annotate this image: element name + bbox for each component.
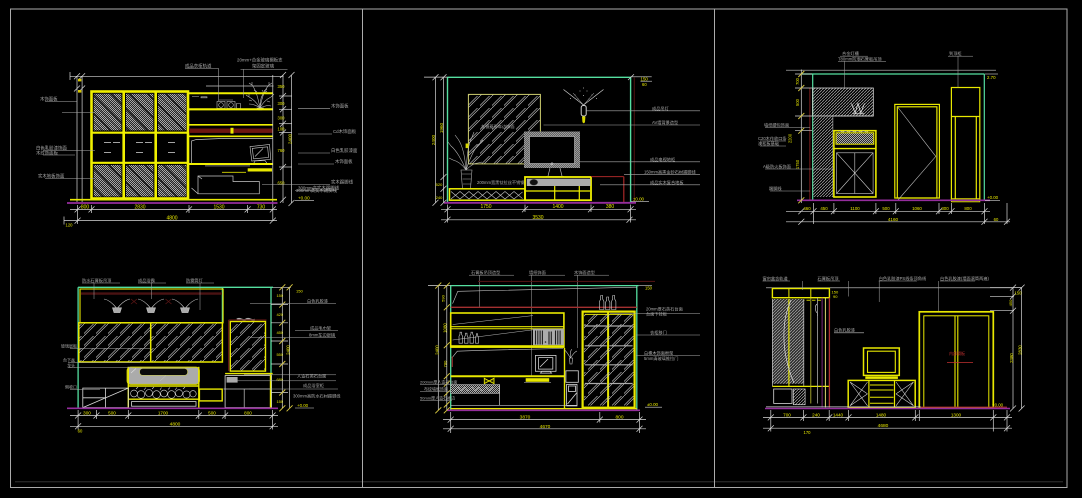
svg-text:A级防火板饰面: A级防火板饰面 [763,163,791,170]
svg-text:白色乳胶漆面: 白色乳胶漆面 [331,147,358,154]
svg-text:1080: 1080 [443,323,448,333]
svg-text:780: 780 [443,360,448,367]
svg-text:300: 300 [278,116,286,121]
svg-text:420: 420 [276,312,283,317]
svg-text:侧收口: 侧收口 [65,384,77,390]
svg-text:300: 300 [941,206,949,211]
svg-text:成品毛巾架: 成品毛巾架 [310,325,331,332]
svg-text:350: 350 [278,84,286,89]
svg-text:木纹饰面板: 木纹饰面板 [36,149,59,156]
svg-text:台面下挂板: 台面下挂板 [646,311,668,318]
svg-text:墙纸饰面: 墙纸饰面 [529,269,546,276]
svg-text:实木踢脚线: 实木踢脚线 [331,179,354,186]
svg-text:800: 800 [964,206,972,211]
svg-text:4680: 4680 [878,423,889,429]
svg-text:460: 460 [803,206,811,211]
svg-text:500: 500 [208,411,216,416]
svg-text:200mm厚人造石台面: 200mm厚人造石台面 [420,379,457,385]
svg-text:成品浴室柜: 成品浴室柜 [303,382,324,389]
svg-text:内部隔板: 内部隔板 [949,350,965,356]
svg-text:成品浴霸: 成品浴霸 [138,277,155,284]
svg-text:2400: 2400 [288,133,293,144]
svg-text:玻璃层板: 玻璃层板 [61,343,77,349]
svg-text:木饰面板: 木饰面板 [331,103,349,110]
svg-text:成品衣柜轨道: 成品衣柜轨道 [185,63,212,70]
svg-text:木饰面板: 木饰面板 [40,96,58,103]
svg-text:500: 500 [795,98,800,106]
svg-text:150: 150 [276,293,283,298]
svg-text:500: 500 [882,206,890,211]
svg-text:1060: 1060 [912,206,922,211]
svg-text:3530: 3530 [532,215,543,221]
svg-text:2200: 2200 [788,133,793,143]
svg-text:800: 800 [615,415,623,421]
svg-text:成品吊灯: 成品吊灯 [652,105,670,112]
svg-text:90: 90 [833,294,838,299]
svg-text:石膏板吊顶造型: 石膏板吊顶造型 [471,269,500,276]
svg-text:300: 300 [278,101,286,106]
svg-text:1750: 1750 [795,159,800,169]
svg-text:到顶柜: 到顶柜 [949,50,962,57]
svg-text:700: 700 [795,77,800,85]
svg-text:4670: 4670 [540,424,551,430]
svg-text:澳松板基础: 澳松板基础 [758,140,779,147]
svg-text:灰镜菱形车边饰面: 灰镜菱形车边饰面 [481,123,515,130]
svg-text:450: 450 [820,206,828,211]
svg-text:450: 450 [276,330,283,335]
svg-text:AV墙背景造型: AV墙背景造型 [652,119,678,126]
svg-text:+0.00: +0.00 [297,403,309,408]
svg-text:防水石膏板吊顶: 防水石膏板吊顶 [82,277,112,284]
svg-text:1100: 1100 [850,206,860,211]
svg-text:150: 150 [276,399,283,404]
svg-text:成品电视地柜: 成品电视地柜 [650,156,675,163]
svg-text:2400: 2400 [286,345,291,355]
svg-text:2400: 2400 [431,134,436,145]
svg-text:200mm宽黑钛拉丝不锈钢: 200mm宽黑钛拉丝不锈钢 [477,179,524,186]
svg-text:450: 450 [1008,299,1013,306]
svg-text:布纹墙纸饰面: 布纹墙纸饰面 [424,386,448,392]
svg-text:800: 800 [244,411,252,416]
svg-text:木饰面板: 木饰面板 [335,158,353,165]
svg-text:150: 150 [296,289,303,294]
svg-text:1530: 1530 [213,204,224,210]
svg-text:白色乳胶漆: 白色乳胶漆 [307,298,328,305]
svg-text:架固定玻璃: 架固定玻璃 [252,63,275,70]
svg-text:石膏板吊顶: 石膏板吊顶 [818,275,840,282]
svg-text:4160: 4160 [888,217,899,222]
svg-text:730: 730 [257,204,266,210]
svg-text:1960: 1960 [439,122,444,133]
svg-text:2380: 2380 [1009,353,1014,363]
svg-text:300mm高防水石材踢脚线: 300mm高防水石材踢脚线 [293,393,341,400]
svg-text:300mm高实木踢脚线: 300mm高实木踢脚线 [296,187,338,194]
svg-text:台下盆: 台下盆 [63,357,75,363]
svg-text:1400: 1400 [552,204,563,210]
svg-text:380: 380 [606,204,615,210]
svg-text:衣柜移门: 衣柜移门 [650,329,667,336]
svg-text:白色乳胶漆(墙面滚筒两遍): 白色乳胶漆(墙面滚筒两遍) [940,275,989,282]
svg-text:150: 150 [641,77,649,82]
svg-text:+0.00: +0.00 [987,195,999,200]
svg-text:150: 150 [645,286,653,291]
svg-text:760: 760 [278,148,286,153]
svg-text:800: 800 [81,204,90,210]
svg-text:龙头: 龙头 [67,362,75,368]
svg-text:窗帘盒含轨道: 窗帘盒含轨道 [763,275,789,282]
svg-text:240: 240 [812,412,820,417]
svg-text:防雾筒灯: 防雾筒灯 [186,277,204,284]
svg-text:120: 120 [66,223,74,228]
svg-text:100: 100 [278,127,286,132]
svg-text:+0.00: +0.00 [298,195,310,200]
svg-text:3870: 3870 [520,415,531,421]
svg-text:60: 60 [994,217,999,222]
svg-text:680: 680 [276,377,283,382]
svg-text:60: 60 [642,82,647,87]
svg-text:成品实木复合地板: 成品实木复合地板 [650,179,684,186]
svg-text:Cd木饰面板: Cd木饰面板 [333,128,357,135]
svg-text:±0.00: ±0.00 [633,197,645,202]
svg-text:+0.00: +0.00 [992,403,1004,408]
svg-text:墙纸硬包饰面: 墙纸硬包饰面 [764,122,789,129]
svg-text:2830: 2830 [134,204,145,210]
svg-text:500: 500 [108,411,116,416]
svg-text:520: 520 [436,182,443,187]
svg-text:5mm清玻璃推拉门: 5mm清玻璃推拉门 [644,355,678,362]
svg-text:白色乳胶漆PS线条顶角线: 白色乳胶漆PS线条顶角线 [879,275,927,282]
svg-text:1750: 1750 [480,204,491,210]
svg-text:2.70: 2.70 [987,75,996,80]
svg-text:T80mm防潮石膏板吊顶: T80mm防潮石膏板吊顶 [838,55,882,62]
svg-text:590: 590 [441,294,446,301]
svg-text:170: 170 [804,430,812,435]
svg-text:300: 300 [83,411,91,416]
svg-text:人造石英石台面: 人造石英石台面 [297,373,326,380]
svg-text:木饰面造型: 木饰面造型 [574,269,595,276]
svg-text:实木地板饰面: 实木地板饰面 [38,173,65,180]
svg-text:1440: 1440 [833,412,844,417]
svg-text:700: 700 [783,412,791,417]
svg-text:1300: 1300 [951,412,962,417]
svg-text:2830: 2830 [1018,345,1023,355]
svg-text:1480: 1480 [876,412,887,417]
svg-text:±0.00: ±0.00 [647,402,659,407]
svg-text:60: 60 [78,429,83,434]
svg-text:240: 240 [436,195,443,200]
svg-text:白色乳胶漆: 白色乳胶漆 [834,327,855,334]
svg-text:踢脚线: 踢脚线 [769,185,782,192]
svg-text:550: 550 [276,352,283,357]
svg-text:4800: 4800 [166,216,177,222]
svg-text:1700: 1700 [158,411,169,416]
svg-text:8mm车边银镜: 8mm车边银镜 [309,331,336,338]
svg-text:20mm+合金玻璃搁板支: 20mm+合金玻璃搁板支 [237,57,283,64]
svg-text:150mm高黑金砂石材踢脚线: 150mm高黑金砂石材踢脚线 [644,168,696,175]
svg-text:2400: 2400 [435,345,440,355]
svg-text:4800: 4800 [170,421,181,427]
svg-text:150: 150 [1015,291,1023,296]
svg-text:50mm厚人造石裙边: 50mm厚人造石裙边 [420,395,455,401]
